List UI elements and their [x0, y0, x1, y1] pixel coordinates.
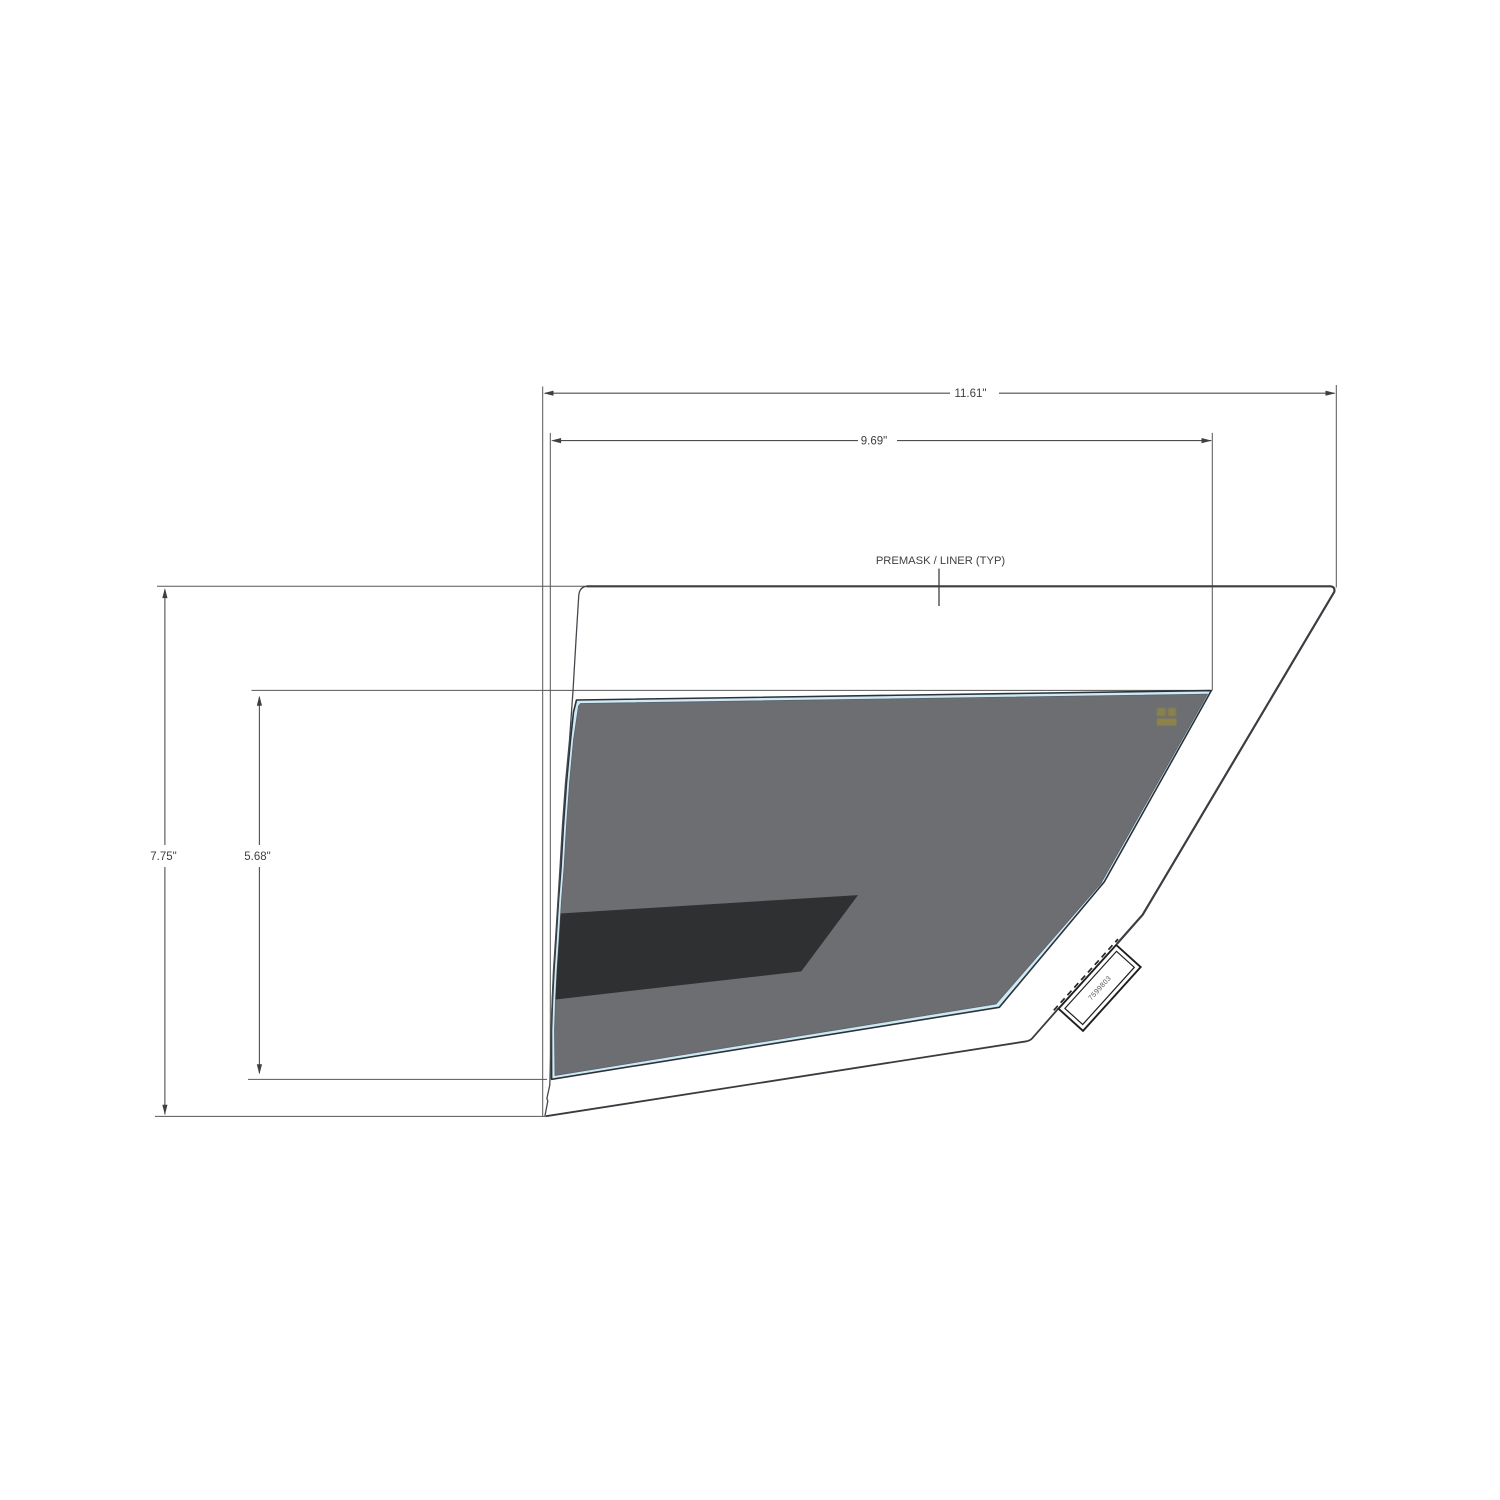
svg-text:7.75": 7.75" — [150, 851, 176, 863]
svg-text:11.61": 11.61" — [954, 388, 986, 400]
svg-text:5.68": 5.68" — [244, 851, 270, 863]
svg-text:PREMASK / LINER (TYP): PREMASK / LINER (TYP) — [876, 555, 1006, 567]
svg-text:9.69": 9.69" — [861, 435, 887, 447]
